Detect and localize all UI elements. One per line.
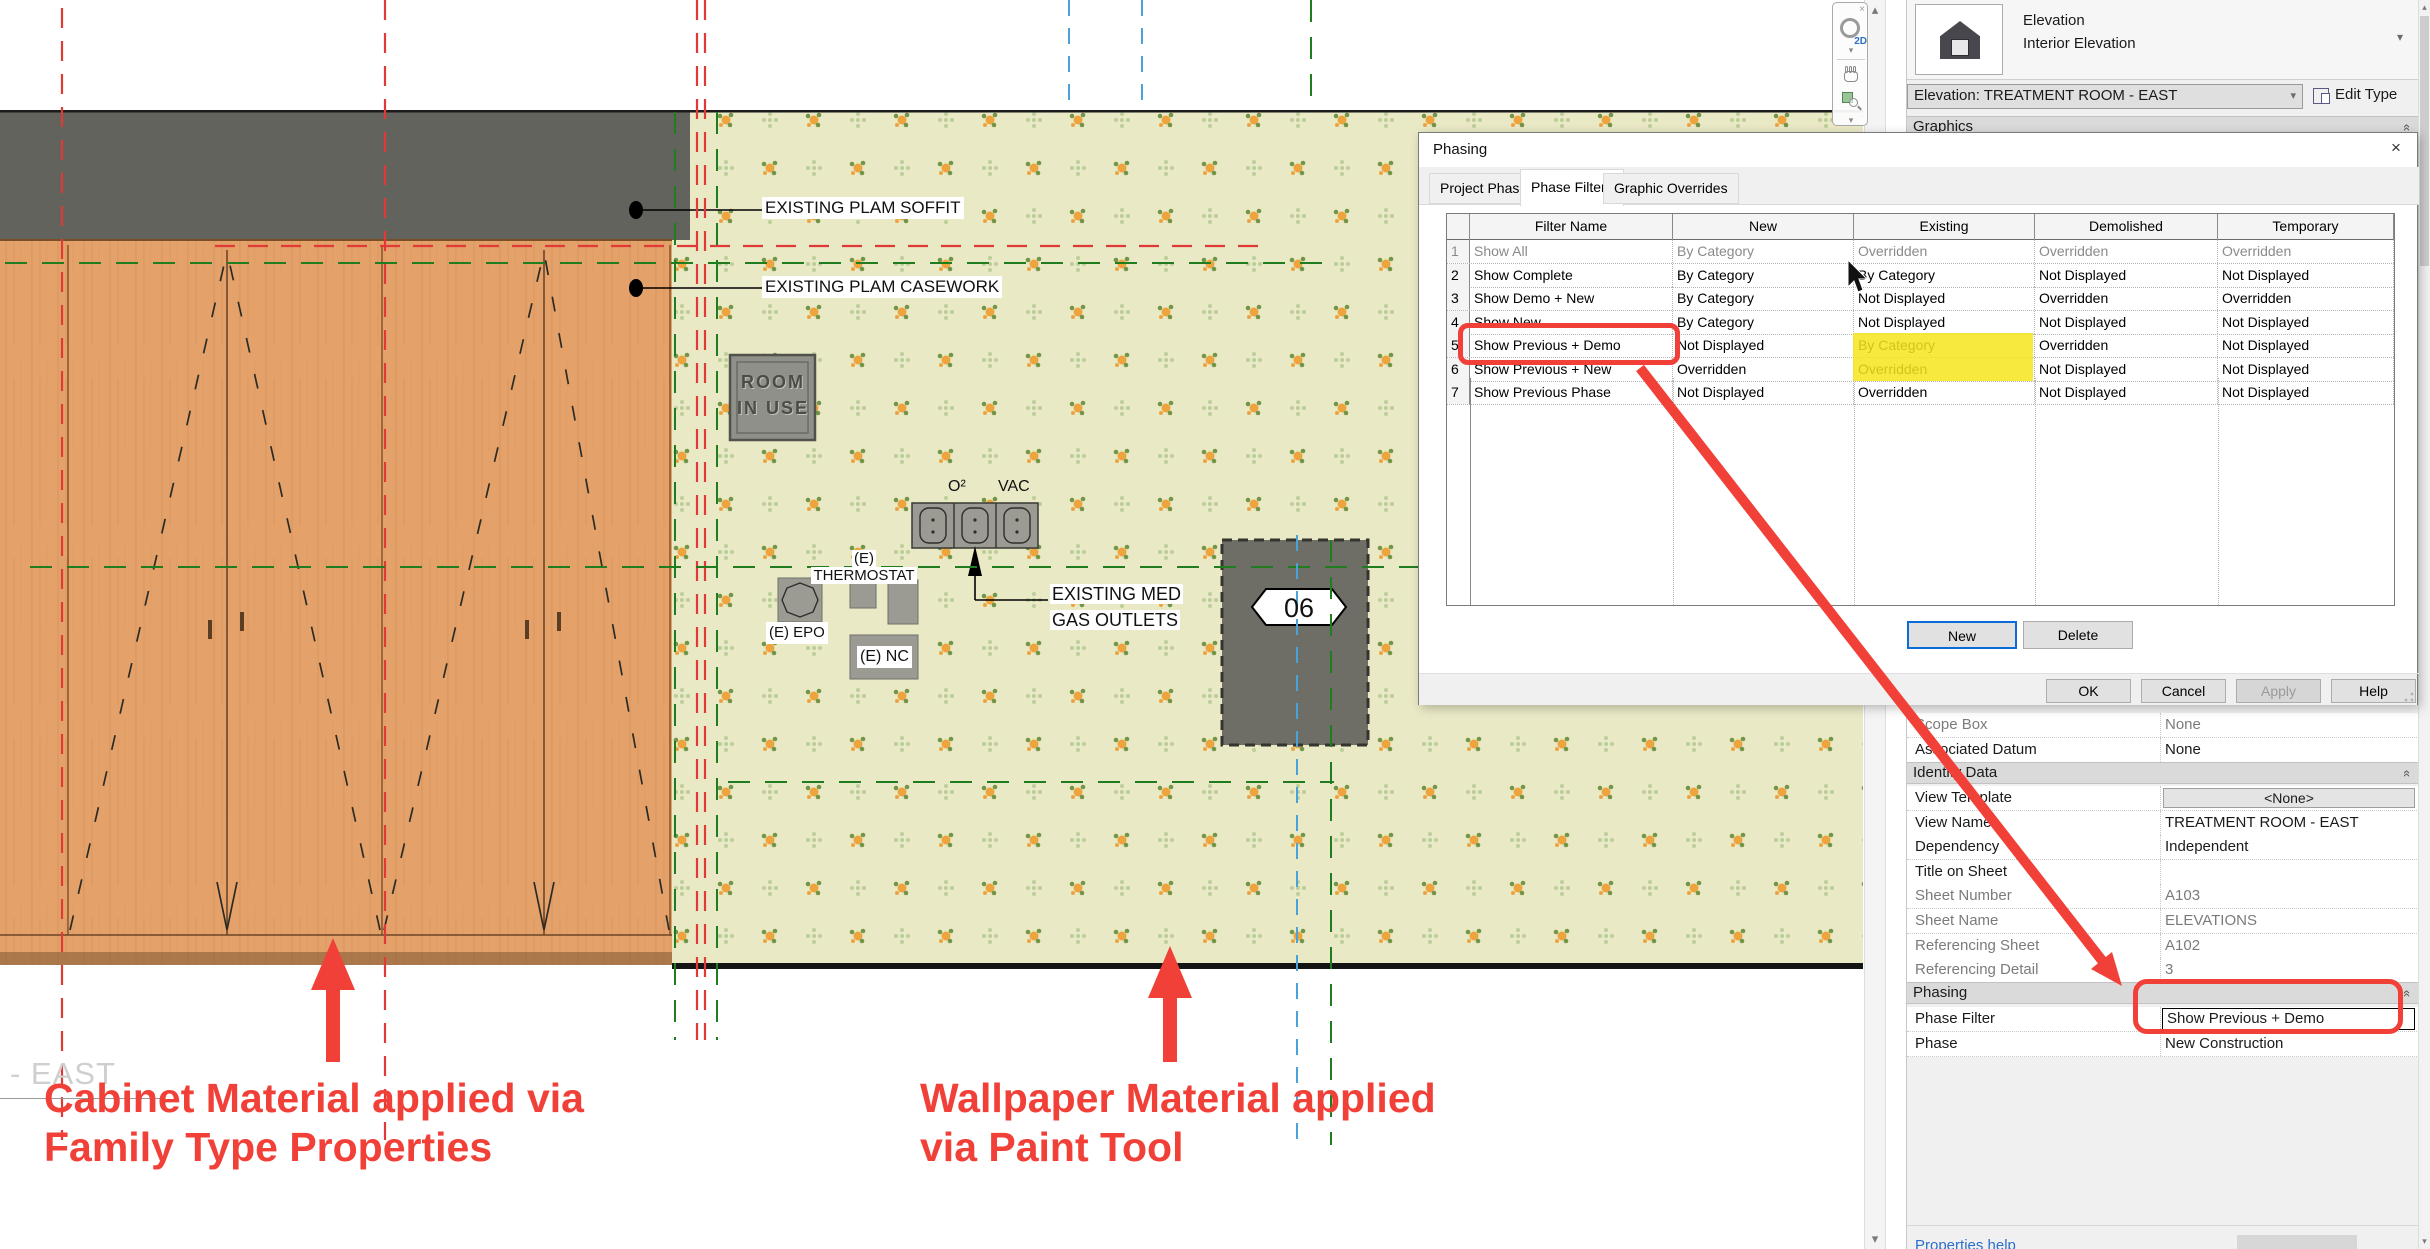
cell-temporary[interactable]: Overridden [2218, 287, 2394, 310]
dialog-close-icon[interactable]: × [2379, 135, 2413, 163]
family-name: Elevation [2023, 12, 2085, 29]
properties-scrollbar[interactable]: ▴ ▾ [2418, 0, 2430, 1249]
cell-new[interactable]: By Category [1673, 287, 1854, 310]
phasing-header-label: Phasing [1913, 984, 1967, 1001]
table-row-3[interactable]: 3 Show Demo + New By Category Not Displa… [1447, 287, 2394, 311]
element-filter-value: Elevation: TREATMENT ROOM - EAST [1914, 87, 2177, 104]
collapse-icon[interactable]: « [2400, 990, 2415, 997]
cell-new[interactable]: By Category [1673, 311, 1854, 334]
cell-demolished[interactable]: Overridden [2035, 334, 2218, 357]
table-header: Filter Name New Existing Demolished Temp… [1447, 214, 2394, 240]
combo-chevron-icon[interactable]: ▾ [2290, 89, 2296, 102]
cell-new[interactable]: By Category [1673, 264, 1854, 287]
col-temporary: Temporary [2218, 214, 2394, 240]
cell-demolished[interactable]: Overridden [2035, 287, 2218, 310]
pan-finger [1849, 66, 1852, 73]
scroll-up-icon[interactable]: ▴ [1865, 2, 1885, 18]
prop-value: 3 [2165, 961, 2413, 978]
element-filter-combo[interactable]: Elevation: TREATMENT ROOM - EAST ▾ [1907, 84, 2303, 109]
type-selector[interactable]: Elevation Interior Elevation ▾ [1907, 0, 2419, 80]
prop-value: A102 [2165, 937, 2413, 954]
prop-label: Dependency [1915, 838, 2155, 855]
cancel-button[interactable]: Cancel [2141, 679, 2226, 703]
cell-demolished[interactable]: Overridden [2035, 240, 2218, 263]
table-row-4[interactable]: 4 Show New By Category Not Displayed Not… [1447, 311, 2394, 335]
medgas-label: EXISTING MED GAS OUTLETS [1050, 581, 1183, 633]
prop-row-referencing-sheet[interactable]: Referencing Sheet A102 [1907, 934, 2419, 959]
col-num [1447, 214, 1470, 240]
navbar-close-icon[interactable]: × [1859, 4, 1865, 15]
magnifier-handle [1857, 106, 1862, 111]
prop-row-title-on-sheet[interactable]: Title on Sheet [1907, 860, 2419, 885]
soffit-label: EXISTING PLAM SOFFIT [762, 197, 964, 219]
col-demolished: Demolished [2035, 214, 2218, 240]
navbar-divider [1837, 59, 1865, 60]
type-name: Interior Elevation [2023, 35, 2136, 52]
dialog-title: Phasing [1433, 141, 1487, 158]
table-row-2[interactable]: 2 Show Complete By Category By Category … [1447, 264, 2394, 288]
prop-row-view-template[interactable]: View Template <None> [1907, 786, 2419, 811]
prop-label: Scope Box [1915, 716, 2155, 733]
thermostat-label-line2: THERMOSTAT [811, 567, 916, 584]
cell-filter-name[interactable]: Show New [1470, 311, 1673, 334]
prop-row-associated-datum[interactable]: Associated Datum None [1907, 738, 2419, 763]
identity-data-header-label: Identity Data [1913, 764, 1997, 781]
scroll-up-icon[interactable]: ▴ [2419, 2, 2430, 13]
door-tag: 06 [1252, 593, 1346, 624]
col-existing: Existing [1854, 214, 2035, 240]
prop-label: Sheet Number [1915, 887, 2155, 904]
table-row-1[interactable]: 1 Show All By Category Overridden Overri… [1447, 240, 2394, 264]
col-filter-name: Filter Name [1470, 214, 1673, 240]
wheel-dropdown-icon[interactable]: ▾ [1833, 45, 1869, 56]
phase-filter-input[interactable]: Show Previous + Demo [2162, 1008, 2415, 1030]
prop-label: View Template [1915, 789, 2155, 806]
properties-help-link[interactable]: Properties help [1915, 1237, 2016, 1249]
row-num: 5 [1447, 334, 1470, 357]
properties-footer: Properties help [1907, 1225, 2419, 1249]
prop-label: View Name [1915, 814, 2155, 831]
prop-label: Referencing Sheet [1915, 937, 2155, 954]
prop-label: Associated Datum [1915, 741, 2155, 758]
cell-temporary[interactable]: Not Displayed [2218, 334, 2394, 357]
prop-label: Referencing Detail [1915, 961, 2155, 978]
scroll-down-icon[interactable]: ▾ [1865, 1231, 1885, 1247]
cell-demolished[interactable]: Not Displayed [2035, 264, 2218, 287]
room-sign-line2: IN USE [737, 398, 809, 418]
prop-label: Phase [1915, 1035, 2155, 1052]
prop-value[interactable]: None [2165, 741, 2413, 758]
cell-demolished[interactable]: Not Displayed [2035, 311, 2218, 334]
steering-wheel-icon[interactable]: 2D [1839, 17, 1863, 41]
prop-row-phase-filter[interactable]: Phase Filter Show Previous + Demo [1907, 1007, 2419, 1032]
collapse-icon[interactable]: « [2400, 770, 2415, 777]
prop-value: A103 [2165, 887, 2413, 904]
prop-row-referencing-detail[interactable]: Referencing Detail 3 [1907, 958, 2419, 983]
elevation-marker-icon-inner [1951, 39, 1969, 56]
section-identity-data[interactable]: Identity Data « [1907, 762, 2419, 784]
cell-filter-name[interactable]: Show Demo + New [1470, 287, 1673, 310]
prop-value[interactable]: New Construction [2165, 1035, 2413, 1052]
cell-existing[interactable]: Not Displayed [1854, 311, 2035, 334]
scroll-down-icon[interactable]: ▾ [2419, 1236, 2430, 1247]
epo-label: (E) EPO [766, 622, 828, 644]
prop-row-sheet-number[interactable]: Sheet Number A103 [1907, 884, 2419, 909]
cell-temporary[interactable]: Overridden [2218, 240, 2394, 263]
cell-existing[interactable]: By Category [1854, 334, 2035, 357]
wheel-ring [1840, 18, 1860, 38]
cell-temporary[interactable]: Not Displayed [2218, 311, 2394, 334]
vac-label: VAC [998, 478, 1030, 496]
collapse-icon[interactable]: « [2400, 124, 2415, 131]
zoom-icon[interactable] [1839, 89, 1863, 113]
cell-existing[interactable]: Not Displayed [1854, 287, 2035, 310]
navigation-bar[interactable]: × 2D ▾ ▾ [1832, 2, 1868, 126]
pan-icon[interactable] [1839, 63, 1863, 87]
phasing-dialog: Phasing × Project Phases Phase Filters G… [1418, 132, 2418, 705]
resize-grip[interactable] [2404, 692, 2414, 702]
casework-label: EXISTING PLAM CASEWORK [762, 276, 1002, 298]
apply-button: Apply [2236, 679, 2321, 703]
prop-value[interactable]: TREATMENT ROOM - EAST [2165, 814, 2413, 831]
edit-type-icon [2313, 88, 2329, 104]
medgas-label-line2: GAS OUTLETS [1050, 610, 1180, 630]
prop-label: Sheet Name [1915, 912, 2155, 929]
cell-filter-name[interactable]: Show All [1470, 240, 1673, 263]
prop-value[interactable]: None [2165, 716, 2413, 733]
view-title-underline [0, 1098, 163, 1099]
cell-new[interactable]: By Category [1673, 240, 1854, 263]
col-new: New [1673, 214, 1854, 240]
medgas-label-line1: EXISTING MED [1050, 584, 1183, 604]
view-title: - EAST [10, 1056, 116, 1092]
prop-value: ELEVATIONS [2165, 912, 2413, 929]
thermostat-label: (E) THERMOSTAT [808, 550, 920, 584]
room-sign-line1: ROOM [741, 372, 805, 392]
tab-graphic-overrides[interactable]: Graphic Overrides [1603, 173, 1739, 204]
edit-type-button[interactable]: Edit Type [2311, 84, 2419, 109]
prop-row-sheet-name[interactable]: Sheet Name ELEVATIONS [1907, 909, 2419, 934]
new-button[interactable]: New [1907, 621, 2017, 649]
view-template-button[interactable]: <None> [2163, 788, 2415, 808]
prop-row-scope-box[interactable]: Scope Box None [1907, 713, 2419, 738]
zoom-dropdown-icon[interactable]: ▾ [1833, 115, 1869, 126]
type-selector-dropdown-icon[interactable]: ▾ [2397, 30, 2403, 44]
pan-finger [1845, 66, 1848, 73]
nc-label: (E) NC [857, 646, 912, 668]
prop-label: Title on Sheet [1915, 863, 2155, 880]
row-num: 4 [1447, 311, 1470, 334]
scroll-thumb[interactable] [2420, 16, 2429, 266]
prop-row-dependency[interactable]: Dependency Independent [1907, 835, 2419, 860]
o2-label: O² [948, 478, 966, 496]
section-phasing[interactable]: Phasing « [1907, 982, 2419, 1004]
cell-existing[interactable]: Overridden [1854, 240, 2035, 263]
table-empty-area [1447, 378, 2394, 605]
prop-row-phase[interactable]: Phase New Construction [1907, 1032, 2419, 1057]
row-num: 3 [1447, 287, 1470, 310]
cell-new[interactable]: Not Displayed [1673, 334, 1854, 357]
row-num: 1 [1447, 240, 1470, 263]
thermostat-label-line1: (E) [852, 550, 876, 567]
phase-filters-table: Filter Name New Existing Demolished Temp… [1446, 213, 2395, 606]
apply-button-sliver[interactable] [2237, 1235, 2357, 1249]
type-icon-box [1915, 4, 2003, 75]
cell-temporary[interactable]: Not Displayed [2218, 264, 2394, 287]
delete-button[interactable]: Delete [2023, 621, 2133, 649]
row-num: 2 [1447, 264, 1470, 287]
dialog-tabstrip: Project Phases Phase Filters Graphic Ove… [1419, 167, 2419, 205]
dialog-button-bar: OK Cancel Apply Help [1419, 674, 2417, 705]
prop-label: Phase Filter [1915, 1010, 2155, 1027]
pan-finger [1853, 66, 1856, 73]
prop-value[interactable]: Independent [2165, 838, 2413, 855]
ok-button[interactable]: OK [2046, 679, 2131, 703]
room-in-use-sign: ROOM IN USE [731, 369, 815, 421]
table-row-5[interactable]: 5 Show Previous + Demo Not Displayed By … [1447, 334, 2394, 358]
cell-existing[interactable]: By Category [1854, 264, 2035, 287]
edit-type-label: Edit Type [2335, 86, 2397, 103]
prop-row-view-name[interactable]: View Name TREATMENT ROOM - EAST [1907, 811, 2419, 836]
cell-filter-name[interactable]: Show Previous + Demo [1470, 334, 1673, 357]
cell-filter-name[interactable]: Show Complete [1470, 264, 1673, 287]
